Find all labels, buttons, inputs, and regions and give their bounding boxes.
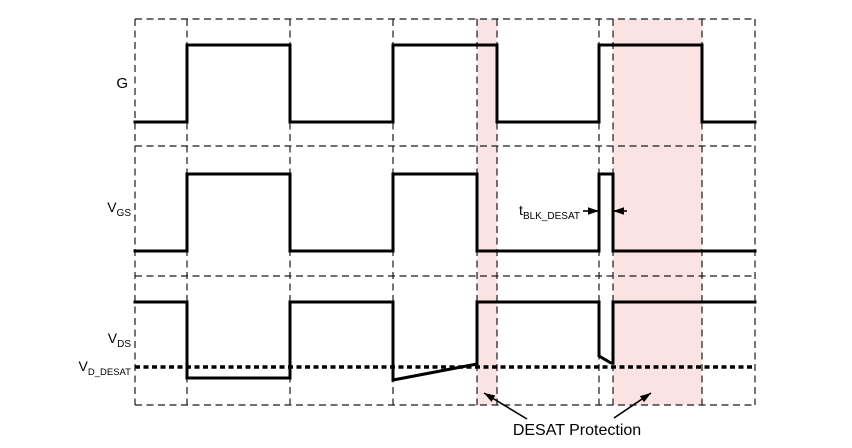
g-signal-label: G [116, 75, 128, 92]
desat-protection-label: DESAT Protection [513, 422, 641, 439]
vds-signal-label: VDS [108, 330, 132, 350]
timing-diagram-canvas: G VGS VDS VD_DESAT tBLK_DESAT DESAT Prot… [0, 0, 852, 448]
vgs-signal-label: VGS [107, 199, 131, 219]
highlight-region-desat-event-1 [477, 19, 497, 405]
vd-desat-threshold-label: VD_DESAT [79, 358, 132, 378]
timing-diagram: G VGS VDS VD_DESAT tBLK_DESAT DESAT Prot… [0, 0, 852, 448]
t-blk-desat-label: tBLK_DESAT [519, 202, 580, 222]
highlight-region-desat-event-2 [613, 19, 702, 405]
desat-protection-pointer-arrow-icon [484, 393, 527, 419]
highlight-regions [477, 19, 702, 405]
